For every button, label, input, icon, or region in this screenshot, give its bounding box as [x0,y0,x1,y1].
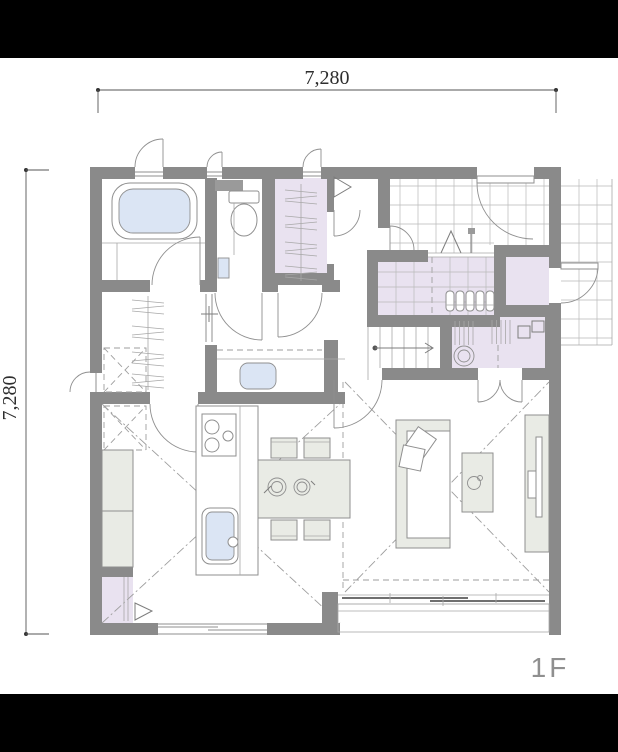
tv [536,437,542,517]
left-dimension-label: 7,280 [0,376,21,421]
side-table [462,453,493,512]
kitchen-sink [202,508,238,564]
counter [102,511,133,567]
chair [304,438,330,458]
shoe-cabinet [446,291,494,311]
chair [304,520,330,540]
wash-basin [240,363,276,389]
cooktop [202,414,236,456]
toilet-tank [229,191,259,203]
screenshot-stage: 7,280 7,280 1F [0,0,618,752]
top-dimension-label: 7,280 [305,67,350,89]
toilet-bowl [231,204,257,236]
floor-plan-drawing: 7,280 7,280 1F [0,0,618,752]
chair [271,520,297,540]
counter [102,450,133,511]
letterbox-top [0,0,618,58]
floor-label: 1F [531,652,570,683]
toilet-counter [218,258,229,278]
toilet-shelf [215,180,243,191]
letterbox-bottom [0,694,618,752]
outdoor-storage-floor [506,257,549,305]
chair [271,438,297,458]
